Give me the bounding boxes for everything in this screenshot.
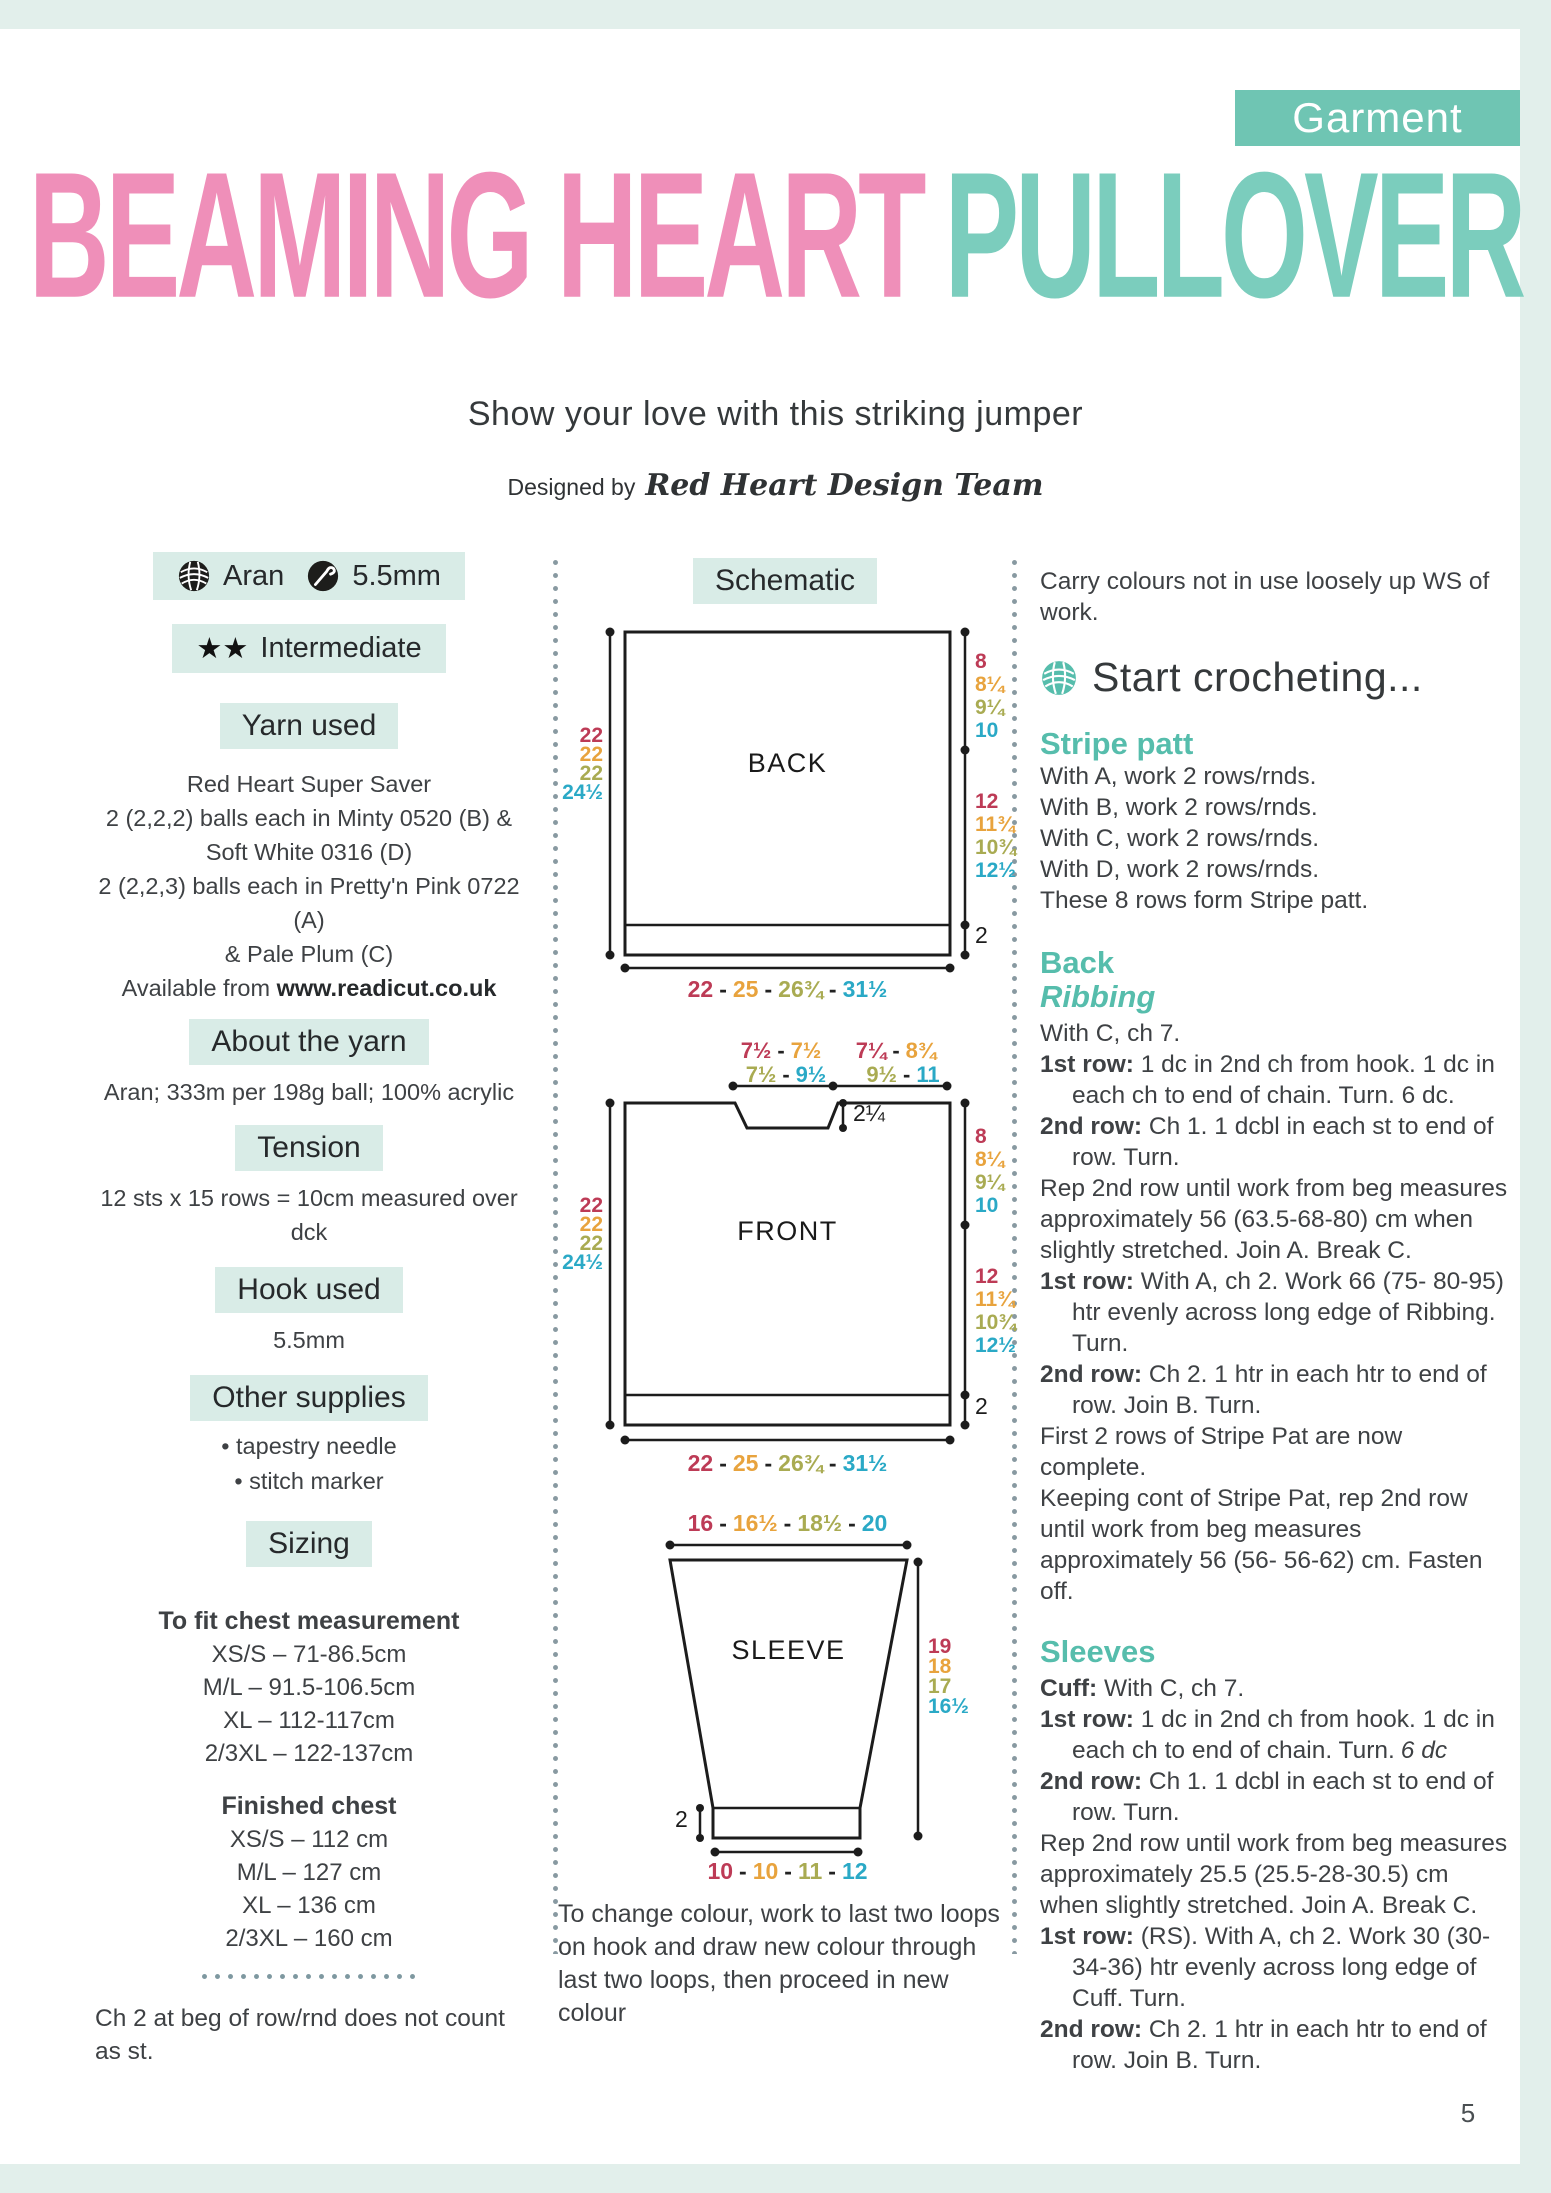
fit-chest-heading: To fit chest measurement (95, 1605, 523, 1638)
sleeve-length-measurements: 19 18 17 16½ (928, 1637, 969, 1717)
measurement-value: 9½ (866, 1062, 897, 1088)
measurement-value: 10¾ (975, 836, 1016, 859)
row-label: 2nd row: (1040, 1361, 1142, 1388)
size-row: M/L – 127 cm (95, 1856, 523, 1889)
instruction-para: 1st row: 1 dc in 2nd ch from hook. 1 dc … (1040, 1049, 1510, 1111)
supply-item: • tapestry needle (95, 1429, 523, 1464)
size-row: 2/3XL – 122-137cm (95, 1737, 523, 1770)
instruction-para: 2nd row: Ch 1. 1 dcbl in each st to end … (1040, 1766, 1510, 1828)
size-row: XS/S – 71-86.5cm (95, 1638, 523, 1671)
hook-size-label: 5.5mm (352, 560, 441, 593)
separator: - (719, 976, 727, 1003)
measurement-value: 26¾ (778, 1450, 823, 1477)
instruction-para: 2nd row: Ch 2. 1 htr in each htr to end … (1040, 2014, 1510, 2076)
instruction-para: Rep 2nd row until work from beg measures… (1040, 1828, 1510, 1921)
page-title-part1: BEAMING HEART (29, 135, 923, 335)
front-label: FRONT (625, 1216, 950, 1247)
pattern-note: Ch 2 at beg of row/rnd does not count as… (95, 2002, 523, 2068)
hook-used-heading: Hook used (215, 1267, 402, 1313)
page-subtitle: Show your love with this striking jumper (0, 395, 1551, 434)
measurement-value: 16½ (733, 1510, 778, 1537)
instruction-text: 1 dc in 2nd ch from hook. 1 dc in each c… (1072, 1051, 1495, 1109)
yarn-weight-label: Aran (223, 560, 284, 593)
measurement-value: 8¼ (975, 673, 1004, 696)
measurement-value: 10 (753, 1858, 779, 1885)
instruction-text: With A, ch 2. Work 66 (75- 80-95) htr ev… (1072, 1268, 1504, 1357)
separator: - (829, 1450, 837, 1477)
dotted-divider (198, 1973, 420, 1980)
crochet-hook-icon (306, 559, 340, 593)
separator: - (719, 1450, 727, 1477)
instruction-para: 1st row: With A, ch 2. Work 66 (75- 80-9… (1040, 1266, 1510, 1359)
instruction-text: With C, ch 7. (1040, 1020, 1180, 1047)
measurement-value: 7½ (746, 1062, 777, 1088)
front-width-measurements: 22-25-26¾-31½ (625, 1450, 950, 1477)
row-label: 1st row: (1040, 1923, 1134, 1950)
separator: - (782, 1062, 789, 1088)
supply-item-label: tapestry needle (236, 1433, 397, 1459)
back-outline-drawing (555, 620, 1015, 1020)
schematic-heading-wrap: Schematic (555, 558, 1015, 604)
separator: - (784, 1858, 792, 1885)
stripe-line: These 8 rows form Stripe patt. (1040, 885, 1510, 916)
measurement-value: 9¼ (975, 696, 1004, 719)
measurement-value: 10¾ (975, 1311, 1016, 1334)
measurement-value: 18½ (797, 1510, 842, 1537)
sleeve-bottom-width-measurements: 10-10-11-12 (645, 1858, 930, 1885)
instruction-para: Keeping cont of Stripe Pat, rep 2nd row … (1040, 1483, 1510, 1607)
schematic-back: BACK 22 22 22 24½ 8 8¼ 9¼ 10 12 11¾ 10¾ … (555, 620, 1015, 1020)
stripe-patt-heading: Stripe patt (1040, 727, 1510, 761)
measurement-value: 20 (862, 1510, 888, 1537)
measurement-value: 10 (975, 719, 1004, 742)
instruction-text: Rep 2nd row until work from beg measures… (1040, 1830, 1507, 1919)
skill-level-badge: ★★ Intermediate (172, 624, 445, 673)
measurement-value: 12 (975, 790, 1016, 813)
instruction-para: 1st row: 1 dc in 2nd ch from hook. 1 dc … (1040, 1704, 1510, 1766)
supplies-column: Aran 5.5mm ★★ Intermediate Yarn used Red… (95, 552, 523, 2068)
measurement-value: 26¾ (778, 976, 823, 1003)
colour-change-note: To change colour, work to last two loops… (558, 1898, 1020, 2030)
measurement-value: 11 (798, 1858, 822, 1885)
measurement-value: 16 (688, 1510, 714, 1537)
instruction-text: Keeping cont of Stripe Pat, rep 2nd row … (1040, 1485, 1483, 1605)
back-body-measurements: 12 11¾ 10¾ 12½ (975, 790, 1016, 882)
size-row: XL – 112-117cm (95, 1704, 523, 1737)
page-title-part2: PULLOVER (944, 135, 1522, 335)
separator: - (777, 1038, 784, 1064)
separator: - (764, 1450, 772, 1477)
yarn-line: 2 (2,2,2) balls each in Minty 0520 (B) & (95, 801, 523, 835)
measurement-value: 19 (928, 1637, 969, 1657)
front-shoulder-width-row2: 9½-11 (823, 1062, 983, 1088)
instruction-para: 2nd row: Ch 2. 1 htr in each htr to end … (1040, 1359, 1510, 1421)
yarn-line: Soft White 0316 (D) (95, 835, 523, 869)
measurement-value: 10 (975, 1194, 1004, 1217)
back-length-measurements: 22 22 22 24½ (555, 726, 603, 802)
stripe-line: With C, work 2 rows/rnds. (1040, 823, 1510, 854)
row-label: 1st row: (1040, 1268, 1134, 1295)
bullet-icon: • (221, 1433, 229, 1459)
sleeve-cuff-height: 2 (675, 1806, 688, 1833)
separator: - (892, 1038, 899, 1064)
back-label: BACK (625, 748, 950, 779)
back-armhole-measurements: 8 8¼ 9¼ 10 (975, 650, 1004, 742)
stripe-line: With D, work 2 rows/rnds. (1040, 854, 1510, 885)
supply-item-label: stitch marker (249, 1468, 384, 1494)
instruction-para: 2nd row: Ch 1. 1 dcbl in each st to end … (1040, 1111, 1510, 1173)
sleeve-top-width-measurements: 16-16½-18½-20 (625, 1510, 950, 1537)
designer-name: Red Heart Design Team (645, 468, 1043, 503)
availability-prefix: Available from (122, 975, 270, 1001)
measurement-value: 11¾ (975, 1288, 1016, 1311)
measurement-value: 12 (975, 1265, 1016, 1288)
front-armhole-measurements: 8 8¼ 9¼ 10 (975, 1125, 1004, 1217)
designer-credit-prefix: Designed by (507, 474, 635, 500)
schematic-front: 7½-7½ 7¼-8¾ 7½-9½ 9½-11 2¼ FRONT 22 22 2… (555, 1038, 1015, 1498)
yarn-ball-teal-icon (1040, 659, 1078, 697)
measurement-value: 11 (916, 1062, 939, 1088)
instructions-column: Carry colours not in use loosely up WS o… (1040, 566, 1510, 2076)
separator: - (848, 1510, 856, 1537)
measurement-value: 12½ (975, 1334, 1016, 1357)
measurement-value: 8 (975, 650, 1004, 673)
bullet-icon: • (234, 1468, 242, 1494)
size-row: 2/3XL – 160 cm (95, 1922, 523, 1955)
measurement-value: 9½ (796, 1062, 827, 1088)
instruction-text: With C, ch 7. (1097, 1675, 1244, 1702)
separator: - (784, 1510, 792, 1537)
yarn-line: & Pale Plum (C) (95, 937, 523, 971)
supply-item: • stitch marker (95, 1464, 523, 1499)
tension-heading: Tension (235, 1125, 382, 1171)
tension-text: 12 sts x 15 rows = 10cm measured over dc… (95, 1181, 523, 1249)
yarn-line: Red Heart Super Saver (95, 767, 523, 801)
instruction-para: First 2 rows of Stripe Pat are now compl… (1040, 1421, 1510, 1483)
separator: - (903, 1062, 910, 1088)
size-row: XS/S – 112 cm (95, 1823, 523, 1856)
row-label: 2nd row: (1040, 1768, 1142, 1795)
measurement-value: 12 (842, 1858, 868, 1885)
measurement-value: 22 (688, 976, 714, 1003)
measurement-value: 31½ (843, 976, 888, 1003)
start-crocheting-heading-row: Start crocheting... (1040, 654, 1510, 701)
measurement-value: 25 (733, 1450, 759, 1477)
yarn-used-heading: Yarn used (220, 703, 399, 749)
back-width-measurements: 22-25-26¾-31½ (625, 976, 950, 1003)
back-rib-height: 2 (975, 922, 988, 949)
measurement-value: 24½ (555, 783, 603, 802)
instruction-para: Cuff: With C, ch 7. (1040, 1673, 1510, 1704)
measurement-value: 8¼ (975, 1148, 1004, 1171)
about-yarn-heading: About the yarn (189, 1019, 428, 1065)
instruction-para: 1st row: (RS). With A, ch 2. Work 30 (30… (1040, 1921, 1510, 2014)
separator: - (739, 1858, 747, 1885)
measurement-value: 9¼ (975, 1171, 1004, 1194)
measurement-value: 11¾ (975, 813, 1016, 836)
front-shoulder-width-row1: 7¼-8¾ (816, 1038, 976, 1064)
schematic-heading: Schematic (693, 558, 877, 604)
separator: - (828, 1858, 836, 1885)
measurement-value: 25 (733, 976, 759, 1003)
yarn-ball-icon (177, 559, 211, 593)
measurement-value: 22 (688, 1450, 714, 1477)
measurement-value: 10 (707, 1858, 733, 1885)
back-heading: Back (1040, 946, 1510, 980)
page-border-bottom (0, 2164, 1551, 2193)
stitch-count-emphasis: 6 dc (1401, 1737, 1447, 1764)
sizing-heading: Sizing (246, 1521, 372, 1567)
instruction-text: (RS). With A, ch 2. Work 30 (30- 34-36) … (1072, 1923, 1490, 2012)
instruction-para: Rep 2nd row until work from beg measures… (1040, 1173, 1510, 1266)
separator: - (764, 976, 772, 1003)
instruction-text: First 2 rows of Stripe Pat are now compl… (1040, 1423, 1402, 1481)
measurement-value: 8 (975, 1125, 1004, 1148)
row-label: 2nd row: (1040, 1113, 1142, 1140)
size-row: XL – 136 cm (95, 1889, 523, 1922)
instruction-para: With C, ch 7. (1040, 1018, 1510, 1049)
designer-credit: Designed byRed Heart Design Team (0, 468, 1551, 503)
finished-chest-heading: Finished chest (95, 1790, 523, 1823)
front-body-measurements: 12 11¾ 10¾ 12½ (975, 1265, 1016, 1357)
measurement-value: 17 (928, 1677, 969, 1697)
page-title: BEAMING HEARTPULLOVER (0, 132, 1551, 338)
sleeve-label: SLEEVE (670, 1635, 907, 1666)
carry-colours-note: Carry colours not in use loosely up WS o… (1040, 566, 1510, 628)
measurement-value: 31½ (843, 1450, 888, 1477)
measurement-value: 7¼ (856, 1038, 887, 1064)
separator: - (829, 976, 837, 1003)
row-label: Cuff: (1040, 1675, 1097, 1702)
yarn-availability: Available from www.readicut.co.uk (95, 971, 523, 1005)
yarn-line: 2 (2,2,3) balls each in Pretty'n Pink 07… (95, 869, 523, 937)
size-row: M/L – 91.5-106.5cm (95, 1671, 523, 1704)
schematic-sleeve: 16-16½-18½-20 SLEEVE 19 18 17 16½ 2 10-1… (555, 1510, 1015, 1900)
row-label: 1st row: (1040, 1706, 1134, 1733)
yarn-weight-hook-badge: Aran 5.5mm (153, 552, 465, 600)
ribbing-subheading: Ribbing (1040, 980, 1510, 1014)
other-supplies-heading: Other supplies (190, 1375, 427, 1421)
front-outline-drawing (555, 1038, 1015, 1498)
front-length-measurements: 22 22 22 24½ (555, 1196, 603, 1272)
separator: - (719, 1510, 727, 1537)
row-label: 1st row: (1040, 1051, 1134, 1078)
page-border-right (1520, 29, 1551, 2193)
measurement-value: 8¾ (906, 1038, 937, 1064)
stripe-line: With B, work 2 rows/rnds. (1040, 792, 1510, 823)
stripe-line: With A, work 2 rows/rnds. (1040, 761, 1510, 792)
start-crocheting-heading: Start crocheting... (1092, 654, 1423, 701)
measurement-value: 7½ (741, 1038, 772, 1064)
measurement-value: 24½ (555, 1253, 603, 1272)
measurement-value: 12½ (975, 859, 1016, 882)
about-yarn-text: Aran; 333m per 198g ball; 100% acrylic (95, 1075, 523, 1109)
measurement-value: 16½ (928, 1697, 969, 1717)
skill-level-label: Intermediate (260, 632, 421, 665)
page-border-top (0, 0, 1551, 29)
instruction-text: Rep 2nd row until work from beg measures… (1040, 1175, 1507, 1264)
row-label: 2nd row: (1040, 2016, 1142, 2043)
magazine-page: { "page_number": "5", "badge": { "label"… (0, 0, 1551, 2193)
front-neck-depth: 2¼ (853, 1100, 885, 1127)
retailer-url[interactable]: www.readicut.co.uk (277, 975, 497, 1001)
hook-used-text: 5.5mm (95, 1323, 523, 1357)
front-rib-height: 2 (975, 1393, 988, 1420)
sleeves-heading: Sleeves (1040, 1635, 1510, 1669)
page-number: 5 (1448, 2098, 1488, 2129)
star-icons: ★★ (196, 631, 248, 666)
measurement-value: 18 (928, 1657, 969, 1677)
